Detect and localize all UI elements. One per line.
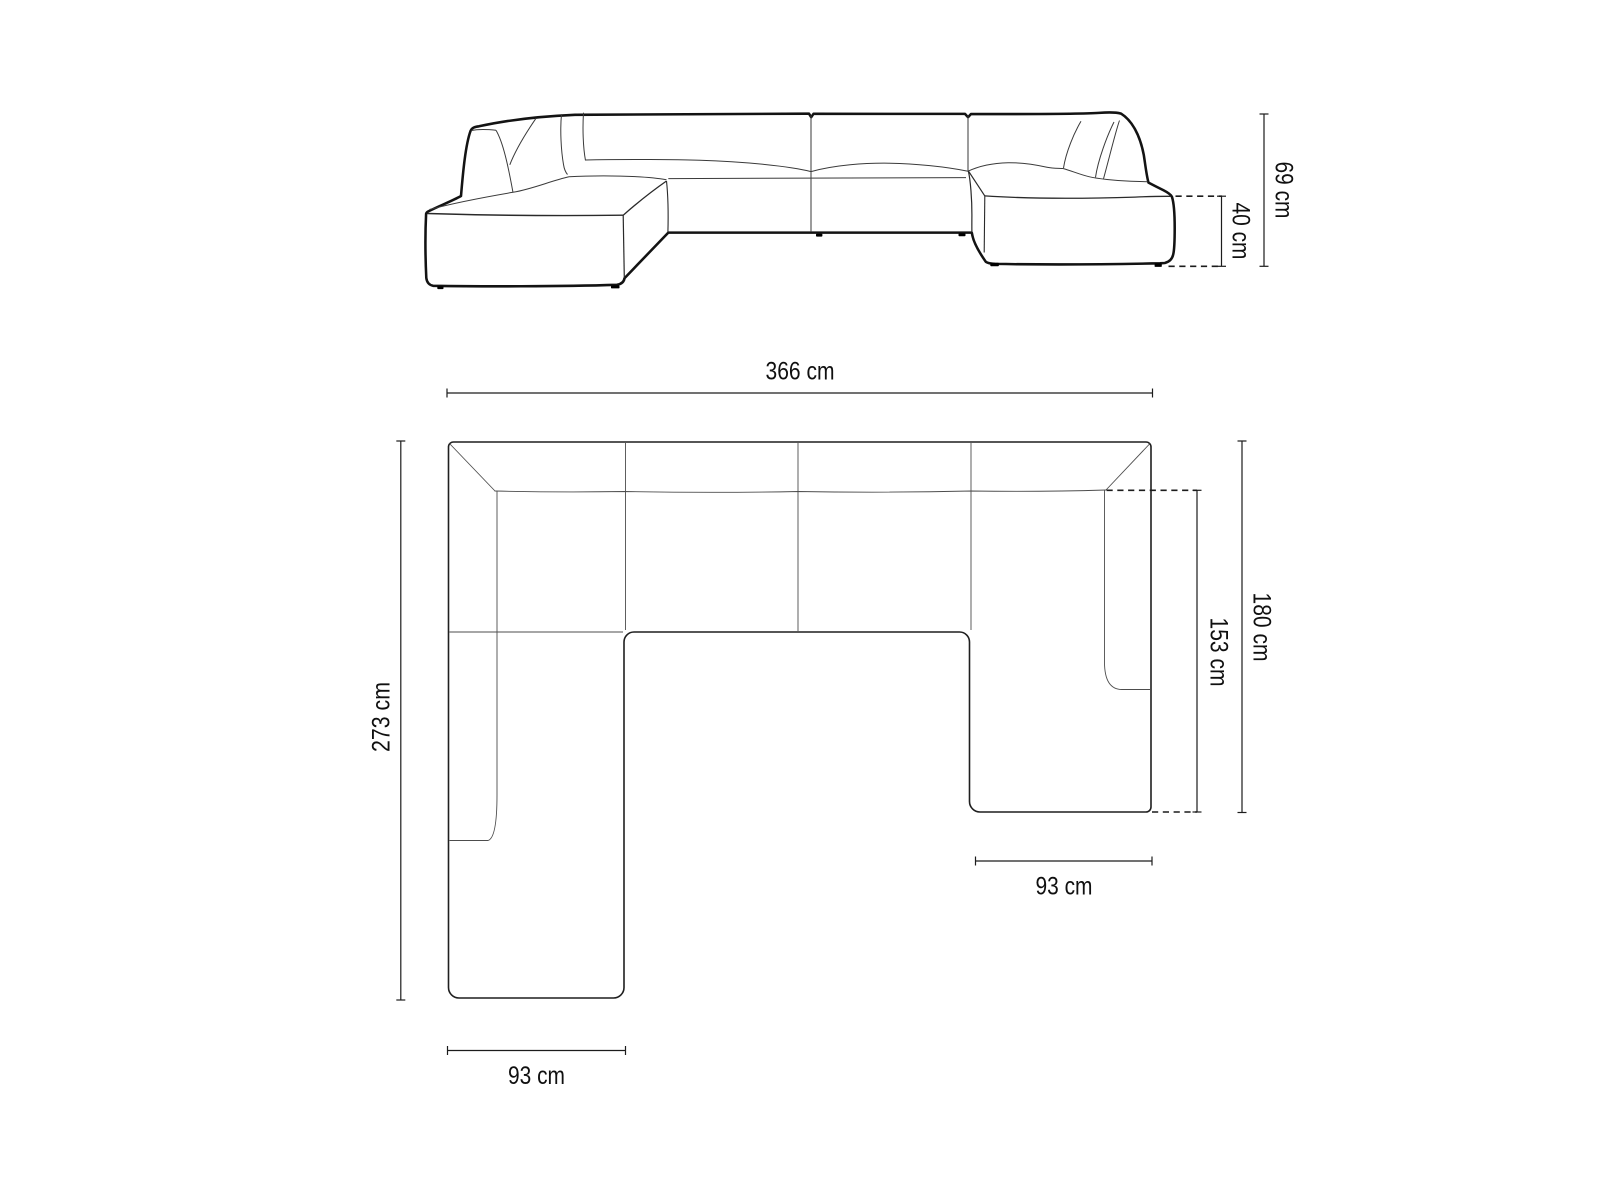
svg-text:180 cm: 180 cm <box>1248 593 1276 662</box>
svg-text:69 cm: 69 cm <box>1270 162 1298 219</box>
svg-text:366 cm: 366 cm <box>766 358 835 386</box>
svg-text:273 cm: 273 cm <box>368 682 396 752</box>
svg-text:153 cm: 153 cm <box>1205 618 1233 687</box>
svg-text:40 cm: 40 cm <box>1227 203 1255 260</box>
svg-text:93 cm: 93 cm <box>1036 873 1093 901</box>
svg-text:93 cm: 93 cm <box>508 1062 565 1090</box>
